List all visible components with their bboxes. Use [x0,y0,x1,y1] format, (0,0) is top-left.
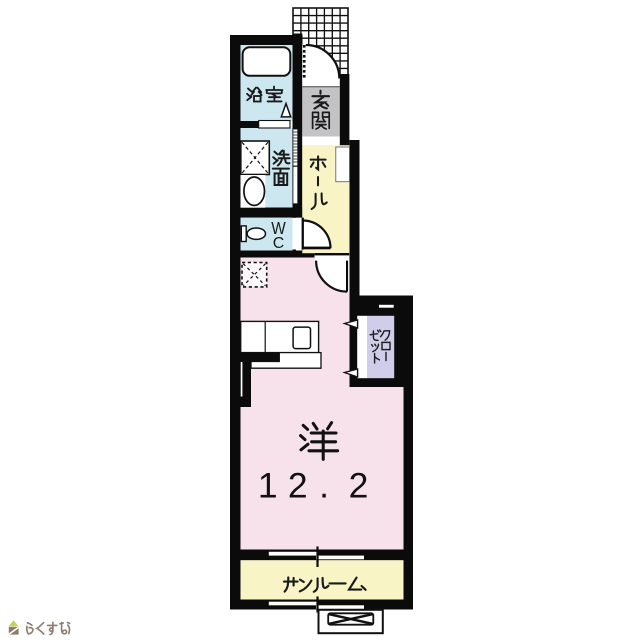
svg-text:C: C [273,235,285,252]
svg-text:.: . [319,465,329,505]
svg-text:2: 2 [349,465,369,505]
svg-text:2: 2 [288,465,308,505]
svg-text:1: 1 [258,465,278,505]
